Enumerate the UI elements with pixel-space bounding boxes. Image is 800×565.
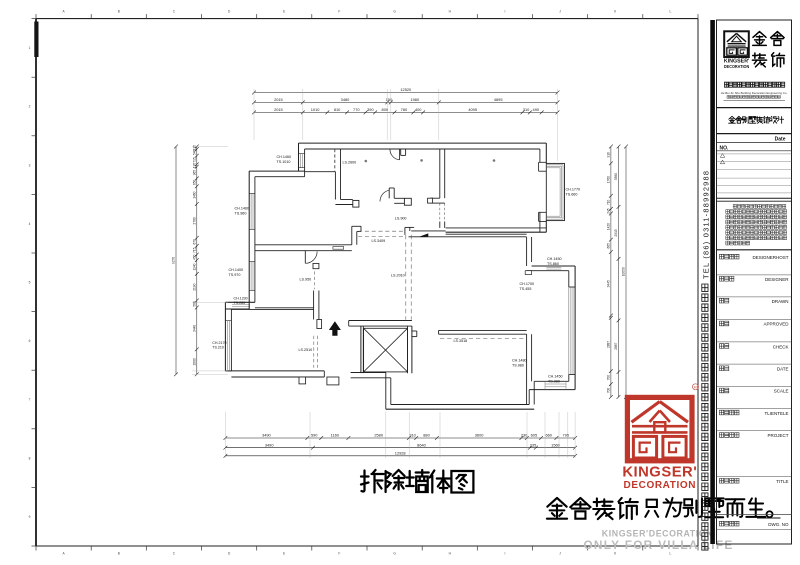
svg-text:5: 5 — [29, 281, 31, 285]
svg-text:4095: 4095 — [468, 107, 477, 112]
svg-text:715: 715 — [192, 247, 196, 253]
svg-text:LS.3518: LS.3518 — [454, 339, 468, 343]
svg-text:1980: 1980 — [410, 97, 419, 102]
svg-text:TS.1010: TS.1010 — [277, 160, 291, 164]
svg-text:LS.2010: LS.2010 — [391, 274, 405, 278]
svg-text:780: 780 — [401, 107, 408, 112]
svg-text:3480: 3480 — [341, 97, 350, 102]
svg-text:APPROVED: APPROVED — [763, 322, 789, 327]
svg-text:2015: 2015 — [274, 97, 283, 102]
svg-text:TS.960: TS.960 — [235, 211, 247, 215]
svg-text:E: E — [283, 10, 285, 14]
svg-text:3600: 3600 — [475, 433, 484, 438]
svg-text:580: 580 — [192, 301, 196, 307]
svg-text:KINGSER': KINGSER' — [622, 464, 697, 480]
svg-text:2060: 2060 — [192, 358, 196, 365]
svg-text:400: 400 — [415, 107, 422, 112]
svg-text:2190: 2190 — [192, 283, 196, 290]
svg-text:3380: 3380 — [614, 173, 618, 180]
svg-text:TS.860: TS.860 — [547, 262, 559, 266]
svg-text:CH.1450: CH.1450 — [548, 375, 563, 379]
svg-text:770: 770 — [353, 107, 360, 112]
svg-text:650: 650 — [192, 180, 196, 186]
svg-text:1760: 1760 — [607, 176, 611, 183]
svg-text:2015: 2015 — [274, 107, 283, 112]
svg-text:TS.970: TS.970 — [229, 273, 241, 277]
svg-text:DATE: DATE — [777, 367, 789, 372]
svg-text:710: 710 — [607, 200, 611, 206]
svg-text:9: 9 — [29, 515, 31, 519]
svg-text:700: 700 — [607, 375, 611, 381]
svg-text:590: 590 — [311, 433, 318, 438]
svg-text:450: 450 — [192, 254, 196, 260]
svg-text:8: 8 — [29, 456, 31, 460]
svg-text:660: 660 — [545, 433, 552, 438]
svg-text:TS.280: TS.280 — [234, 301, 246, 305]
svg-text:700: 700 — [607, 388, 611, 394]
svg-text:PROJECT: PROJECT — [767, 433, 788, 438]
svg-text:795: 795 — [563, 433, 570, 438]
svg-text:310: 310 — [409, 433, 416, 438]
svg-text:10050: 10050 — [622, 267, 626, 276]
svg-text:1560: 1560 — [551, 442, 560, 447]
svg-text:2915: 2915 — [614, 229, 618, 236]
svg-text:TS.980: TS.980 — [548, 379, 560, 383]
svg-text:215: 215 — [192, 145, 196, 151]
svg-text:DRAWN: DRAWN — [772, 299, 789, 304]
svg-text:Date: Date — [775, 136, 786, 142]
svg-text:I: I — [504, 552, 505, 556]
svg-text:245: 245 — [607, 208, 611, 214]
svg-text:B: B — [118, 10, 120, 14]
svg-text:DWG. NO: DWG. NO — [768, 522, 789, 527]
svg-text:DESIGNER: DESIGNER — [765, 277, 789, 282]
svg-text:490: 490 — [533, 107, 540, 112]
svg-text:LS.950: LS.950 — [300, 278, 312, 282]
svg-text:1140: 1140 — [192, 263, 196, 270]
svg-text:3440: 3440 — [192, 325, 196, 332]
svg-text:1010: 1010 — [311, 107, 320, 112]
svg-text:LS.2510: LS.2510 — [299, 348, 313, 352]
svg-text:670: 670 — [192, 239, 196, 245]
svg-text:SCALE: SCALE — [774, 389, 789, 394]
svg-text:150: 150 — [386, 97, 393, 102]
svg-text:TS.455: TS.455 — [520, 287, 532, 291]
svg-text:1160: 1160 — [331, 433, 340, 438]
svg-text:540: 540 — [192, 150, 196, 156]
svg-text:LS.2600: LS.2600 — [343, 161, 357, 165]
svg-text:CH.1400: CH.1400 — [229, 268, 244, 272]
svg-text:9270: 9270 — [172, 257, 176, 264]
svg-text:CH.1230: CH.1230 — [234, 297, 248, 301]
svg-text:CH.1480: CH.1480 — [512, 359, 527, 363]
svg-text:12520: 12520 — [400, 87, 412, 92]
svg-text:CH.1460: CH.1460 — [235, 207, 250, 211]
svg-text:3: 3 — [29, 163, 31, 167]
svg-text:I: I — [504, 10, 505, 14]
svg-text:1420: 1420 — [607, 223, 611, 230]
svg-text:TS.210: TS.210 — [212, 346, 224, 350]
svg-text:L: L — [670, 10, 672, 14]
svg-text:F: F — [338, 10, 340, 14]
svg-text:2: 2 — [29, 105, 31, 109]
svg-text:LS.3409: LS.3409 — [372, 239, 386, 243]
svg-text:CH.1460: CH.1460 — [277, 155, 292, 159]
svg-text:CH.1450: CH.1450 — [547, 257, 562, 261]
svg-text:DECORATION: DECORATION — [724, 64, 750, 69]
svg-text:880: 880 — [423, 433, 430, 438]
svg-text:3445: 3445 — [607, 280, 611, 287]
svg-text:TITLE: TITLE — [776, 479, 788, 484]
svg-text:B: B — [118, 552, 120, 556]
svg-text:2780: 2780 — [192, 217, 196, 224]
svg-text:605: 605 — [531, 433, 538, 438]
svg-text:8640: 8640 — [417, 442, 426, 447]
svg-text:3490: 3490 — [265, 442, 274, 447]
svg-text:2887: 2887 — [607, 341, 611, 348]
svg-text:965: 965 — [192, 170, 196, 176]
svg-text:CH.1770: CH.1770 — [566, 188, 581, 192]
svg-text:DESIGNERHOST: DESIGNERHOST — [752, 255, 788, 260]
svg-text:L: L — [670, 552, 672, 556]
svg-text:800: 800 — [382, 107, 389, 112]
svg-text:310: 310 — [523, 107, 530, 112]
svg-text:TS.980: TS.980 — [512, 363, 524, 367]
svg-text:235: 235 — [530, 442, 537, 447]
svg-text:DECORATION: DECORATION — [624, 480, 696, 491]
svg-text:910: 910 — [607, 152, 611, 158]
svg-text:CH.1700: CH.1700 — [520, 282, 535, 286]
svg-text:CH.2170: CH.2170 — [212, 341, 226, 345]
svg-text:2887: 2887 — [614, 342, 618, 349]
svg-text:R: R — [694, 384, 697, 389]
svg-text:665: 665 — [607, 243, 611, 249]
svg-text:3490: 3490 — [262, 433, 271, 438]
svg-text:He Bei Jin She Building Decora: He Bei Jin She Building Decoration Engin… — [721, 91, 788, 95]
svg-text:2580: 2580 — [374, 433, 383, 438]
svg-text:F: F — [338, 552, 340, 556]
svg-text:12928: 12928 — [395, 450, 406, 455]
svg-text:TEL (86) 0311-88992988: TEL (86) 0311-88992988 — [701, 170, 710, 279]
svg-text:KINGSER'DECORATION: KINGSER'DECORATION — [602, 529, 713, 539]
svg-text:715: 715 — [192, 157, 196, 163]
svg-text:E: E — [283, 552, 285, 556]
svg-text:1: 1 — [29, 46, 31, 50]
svg-text:1460: 1460 — [192, 191, 196, 198]
svg-text:TLIENTELE: TLIENTELE — [764, 411, 788, 416]
svg-text:4895: 4895 — [494, 97, 503, 102]
svg-text:195: 195 — [192, 163, 196, 169]
svg-text:TS.660: TS.660 — [566, 193, 578, 197]
svg-text:6: 6 — [29, 339, 31, 343]
svg-text:4: 4 — [29, 222, 31, 226]
svg-text:810: 810 — [334, 107, 341, 112]
svg-text:7: 7 — [29, 398, 31, 402]
svg-text:CHECK: CHECK — [773, 344, 789, 349]
svg-text:390: 390 — [367, 107, 374, 112]
svg-text:LS.900: LS.900 — [395, 217, 407, 221]
